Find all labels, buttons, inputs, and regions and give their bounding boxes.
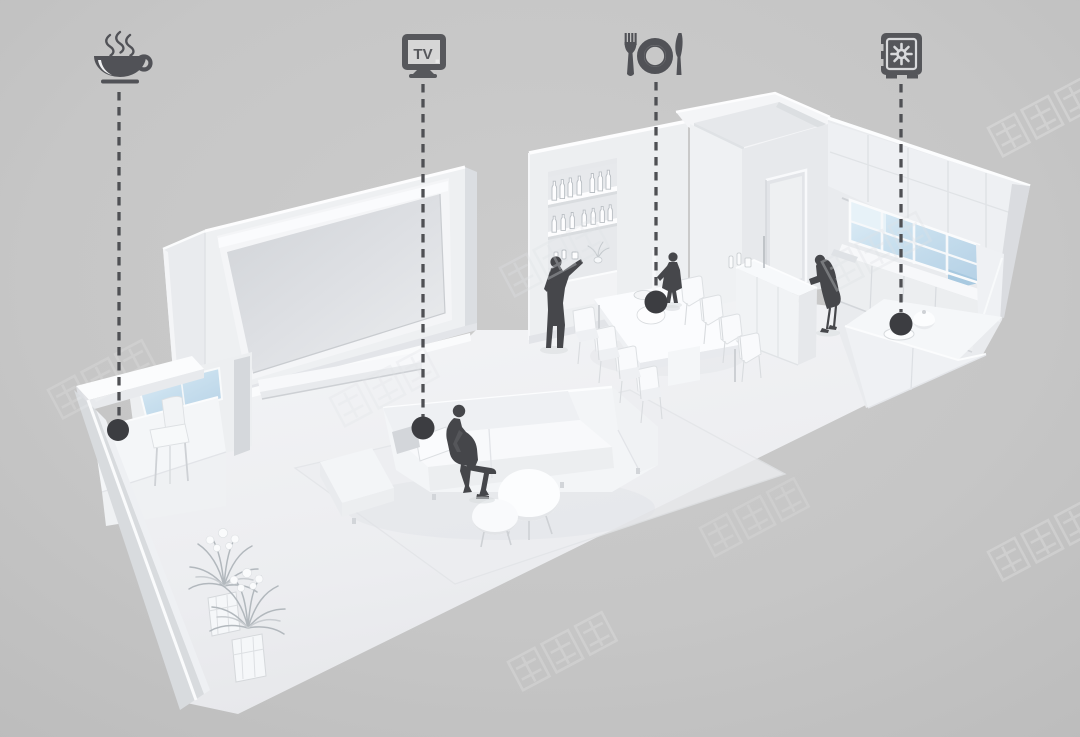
svg-text:TV: TV [413, 46, 432, 63]
